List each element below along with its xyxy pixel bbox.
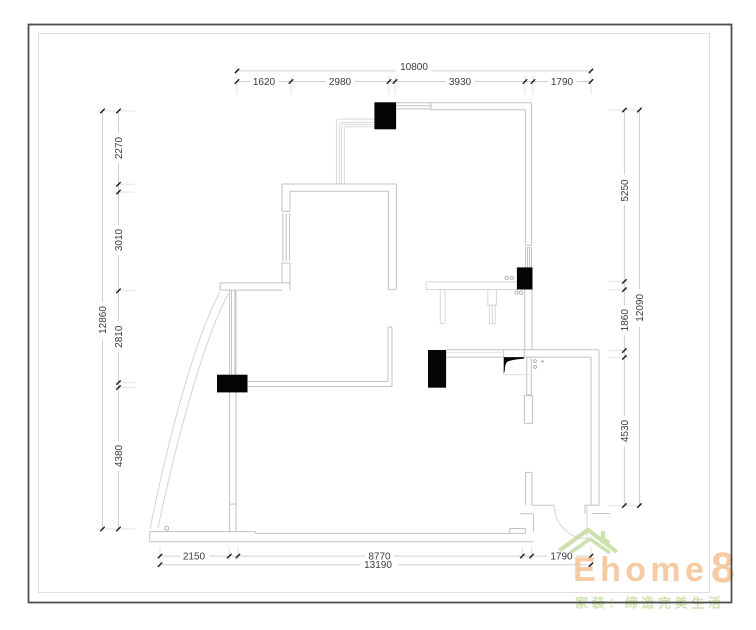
svg-text:2980: 2980 <box>329 77 352 88</box>
svg-text:12860: 12860 <box>98 306 109 334</box>
svg-text:Ehome: Ehome <box>573 551 708 589</box>
svg-text:3010: 3010 <box>114 228 125 251</box>
svg-text:1790: 1790 <box>550 552 573 563</box>
svg-text:4530: 4530 <box>620 419 631 442</box>
svg-text:5250: 5250 <box>620 179 631 202</box>
svg-text:10800: 10800 <box>400 62 428 73</box>
svg-text:3930: 3930 <box>449 77 472 88</box>
svg-text:1860: 1860 <box>620 309 631 332</box>
svg-text:1790: 1790 <box>551 77 574 88</box>
svg-text:2270: 2270 <box>114 136 125 159</box>
svg-text:1620: 1620 <box>253 77 276 88</box>
svg-text:2150: 2150 <box>183 552 206 563</box>
svg-text:12090: 12090 <box>635 293 646 321</box>
svg-text:13190: 13190 <box>364 560 392 571</box>
svg-text:4380: 4380 <box>114 444 125 467</box>
svg-text:2810: 2810 <box>114 325 125 348</box>
